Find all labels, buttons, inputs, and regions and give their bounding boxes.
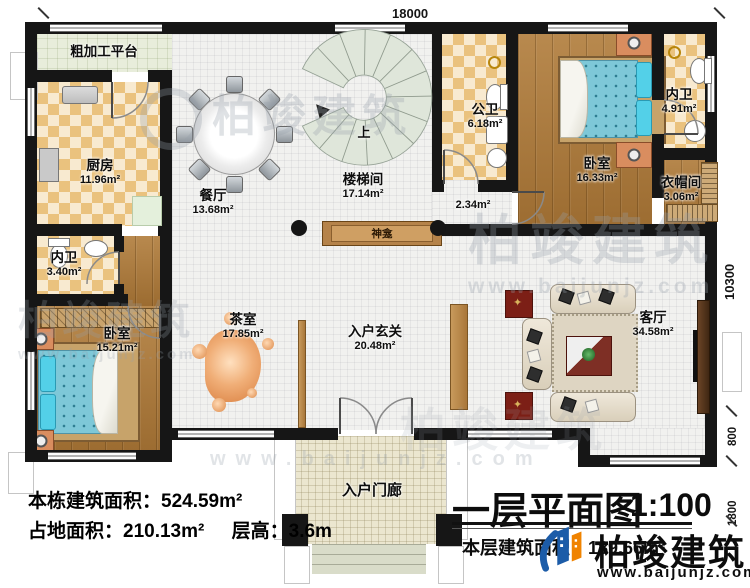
- passage-area-label: 2.34m²: [456, 199, 491, 212]
- room-area: 3.06m²: [661, 191, 702, 204]
- room-label-living: 客厅34.58m²: [633, 310, 674, 338]
- foyer-screen-left: [298, 320, 306, 428]
- extension-box: [722, 332, 742, 392]
- plan-scale: 1:100: [630, 487, 712, 524]
- window: [48, 452, 136, 460]
- room-name: 衣帽间: [661, 175, 702, 191]
- tv: [693, 330, 697, 382]
- window: [335, 24, 405, 32]
- bed-ne-pillow: [636, 62, 652, 98]
- room-area: 17.14m²: [343, 188, 384, 201]
- bed-sw-pillow: [40, 356, 56, 392]
- dim-right-height: 10300: [722, 264, 737, 300]
- cloak-rack: [701, 162, 718, 210]
- brand-logo-icon: [536, 518, 594, 576]
- kitchen-counter: [132, 196, 162, 226]
- tea-rug-dot: [212, 398, 226, 412]
- wall: [430, 224, 717, 236]
- room-area: 15.21m²: [97, 342, 138, 355]
- sink: [487, 148, 507, 168]
- dining-table: [193, 93, 275, 175]
- wall: [160, 70, 172, 462]
- room-name: 入户玄关: [348, 324, 402, 340]
- room-label-public-bath: 公卫6.18m²: [468, 102, 503, 130]
- shrine-table: 神龛: [322, 221, 442, 246]
- kitchen-sink: [62, 86, 98, 104]
- floor-plan-canvas: 神龛 粗加工平台 厨房11.96m² 餐厅13.68m² 楼梯间17.14m² …: [0, 0, 750, 588]
- dim-right-offset: 800: [727, 427, 739, 446]
- room-label-bedroom-sw: 卧室15.21m²: [97, 326, 138, 354]
- room-area: 20.48m²: [348, 340, 402, 353]
- sink: [684, 120, 706, 142]
- room-label-tearoom: 茶室17.85m²: [223, 312, 264, 340]
- bed-ne-sheet: [560, 60, 588, 138]
- floor-living-extension: [590, 428, 705, 457]
- wall: [432, 22, 442, 180]
- info-site-area: 占地面积：210.13m²: [28, 521, 204, 542]
- dim-tick: [713, 7, 725, 19]
- shoe-rack: [666, 204, 718, 222]
- room-area: 3.40m²: [47, 266, 82, 279]
- wall: [432, 180, 444, 192]
- room-area: 4.91m²: [662, 103, 697, 116]
- room-label-stairhall: 楼梯间17.14m²: [343, 172, 384, 200]
- dim-tick: [725, 405, 737, 417]
- room-name: 内卫: [662, 87, 697, 103]
- bed-sw-pillow: [40, 394, 56, 430]
- room-name: 内卫: [47, 250, 82, 266]
- toilet-tank: [48, 238, 70, 247]
- room-label-foyer: 入户玄关20.48m²: [348, 324, 402, 352]
- wall: [25, 294, 128, 306]
- brand-site: www.baijunjz.com: [597, 564, 750, 581]
- nightstand: [616, 142, 652, 168]
- window: [468, 430, 552, 438]
- room-area: 17.85m²: [223, 328, 264, 341]
- room-area: 13.68m²: [193, 204, 234, 217]
- wall: [25, 224, 122, 236]
- room-label-bath-w: 内卫3.40m²: [47, 250, 82, 278]
- room-name: 茶室: [223, 312, 264, 328]
- toilet-tank: [704, 58, 712, 84]
- room-label-platform: 粗加工平台: [70, 44, 138, 60]
- window: [27, 352, 35, 410]
- window: [178, 430, 274, 438]
- wall: [25, 70, 112, 82]
- foyer-screen-right: [450, 304, 468, 410]
- dining-chair: [276, 126, 293, 143]
- room-name: 厨房: [80, 158, 120, 174]
- column: [430, 220, 446, 236]
- column: [291, 220, 307, 236]
- room-area: 11.96m²: [80, 174, 120, 187]
- column-base-right: [438, 546, 464, 584]
- wall: [114, 236, 124, 252]
- room-name: 卧室: [577, 156, 618, 172]
- info-floor-height: 层高：3.6m: [232, 521, 332, 542]
- tv-cabinet: [697, 300, 710, 414]
- wardrobe: [40, 308, 160, 328]
- end-table: [505, 290, 533, 318]
- dining-chair: [226, 76, 243, 93]
- room-name: 客厅: [633, 310, 674, 326]
- tea-rug-dot: [192, 344, 207, 359]
- shrine-label: 神龛: [331, 225, 433, 242]
- room-area: 6.18m²: [468, 118, 503, 131]
- room-name: 入户门廊: [342, 482, 402, 499]
- porch-steps: [312, 544, 426, 574]
- info-line2: 占地面积：210.13m² 层高：3.6m: [28, 516, 332, 543]
- room-label-porch: 入户门廊: [342, 482, 402, 499]
- room-name: 卧室: [97, 326, 138, 342]
- tea-rug-dot: [262, 338, 274, 350]
- window: [610, 457, 700, 465]
- room-label-bath-ne: 内卫4.91m²: [662, 87, 697, 115]
- dim-tick: [725, 455, 737, 467]
- room-area: 2.34m²: [456, 199, 491, 212]
- dim-top-width: 18000: [392, 6, 428, 21]
- info-building-area: 本栋建筑面积：524.59m²: [28, 486, 242, 513]
- room-name: 楼梯间: [343, 172, 384, 188]
- room-label-kitchen: 厨房11.96m²: [80, 158, 120, 186]
- room-name: 餐厅: [193, 188, 234, 204]
- window: [50, 24, 162, 32]
- room-area: 16.33m²: [577, 172, 618, 185]
- sink: [84, 240, 108, 257]
- table-plant: [582, 348, 595, 361]
- wall: [148, 70, 172, 82]
- wall: [652, 148, 717, 160]
- bed-ne-pillow: [636, 100, 652, 136]
- bed-sw-sheet: [92, 350, 118, 434]
- room-label-cloakroom: 衣帽间3.06m²: [661, 175, 702, 203]
- room-label-bedroom-ne: 卧室16.33m²: [577, 156, 618, 184]
- stair-up-label: 上: [357, 126, 370, 141]
- room-name: 粗加工平台: [70, 44, 138, 60]
- end-table: [505, 392, 533, 420]
- room-label-dining: 餐厅13.68m²: [193, 188, 234, 216]
- window: [27, 88, 35, 136]
- window: [548, 24, 628, 32]
- dim-tick: [37, 7, 49, 19]
- towel-ring: [668, 46, 681, 59]
- tea-rug-dot: [247, 388, 257, 398]
- towel-ring: [488, 56, 501, 69]
- room-area: 34.58m²: [633, 326, 674, 339]
- dining-chair: [176, 126, 193, 143]
- kitchen-stove: [39, 148, 59, 182]
- room-name: 公卫: [468, 102, 503, 118]
- column-base-left: [284, 546, 310, 584]
